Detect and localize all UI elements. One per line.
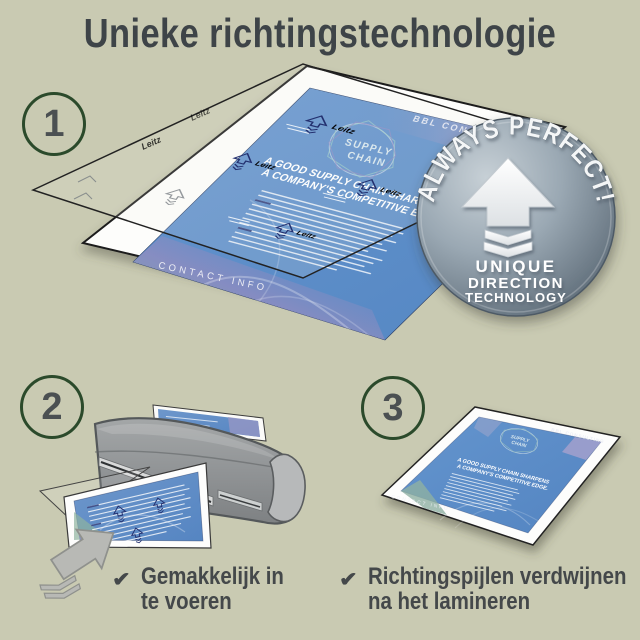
checklist-item-arrows-disappear: ✔ Richtingspijlen verdwijnen na het lami… xyxy=(340,565,640,615)
page-title: Unieke richtingstechnologie xyxy=(84,10,557,57)
checklist-text-line: na het lamineren xyxy=(368,590,626,615)
checklist-text-line: Gemakkelijk in xyxy=(141,565,284,590)
step-number-1: 1 xyxy=(22,92,86,156)
checklist-text-line: Richtingspijlen verdwijnen xyxy=(368,565,626,590)
laminated-document-illustration: SUPPLY CHAIN BBL CONSULTING A GOOD SUPPL… xyxy=(0,0,640,640)
checkmark-icon: ✔ xyxy=(112,567,130,615)
checklist-item-easy-feeding: ✔ Gemakkelijk in te voeren xyxy=(113,565,309,615)
step-number-label: 2 xyxy=(41,386,62,429)
step-number-label: 3 xyxy=(382,387,403,430)
laminated-page: SUPPLY CHAIN BBL CONSULTING A GOOD SUPPL… xyxy=(391,417,606,533)
step-number-3: 3 xyxy=(361,376,425,440)
checkmark-icon: ✔ xyxy=(339,567,357,615)
checklist-text-line: te voeren xyxy=(141,590,284,615)
infographic-canvas: BBL CONSULTING SUPPLY CHAIN A GOOD SUPPL… xyxy=(0,0,640,640)
step-number-2: 2 xyxy=(20,375,84,439)
step-number-label: 1 xyxy=(43,103,64,146)
